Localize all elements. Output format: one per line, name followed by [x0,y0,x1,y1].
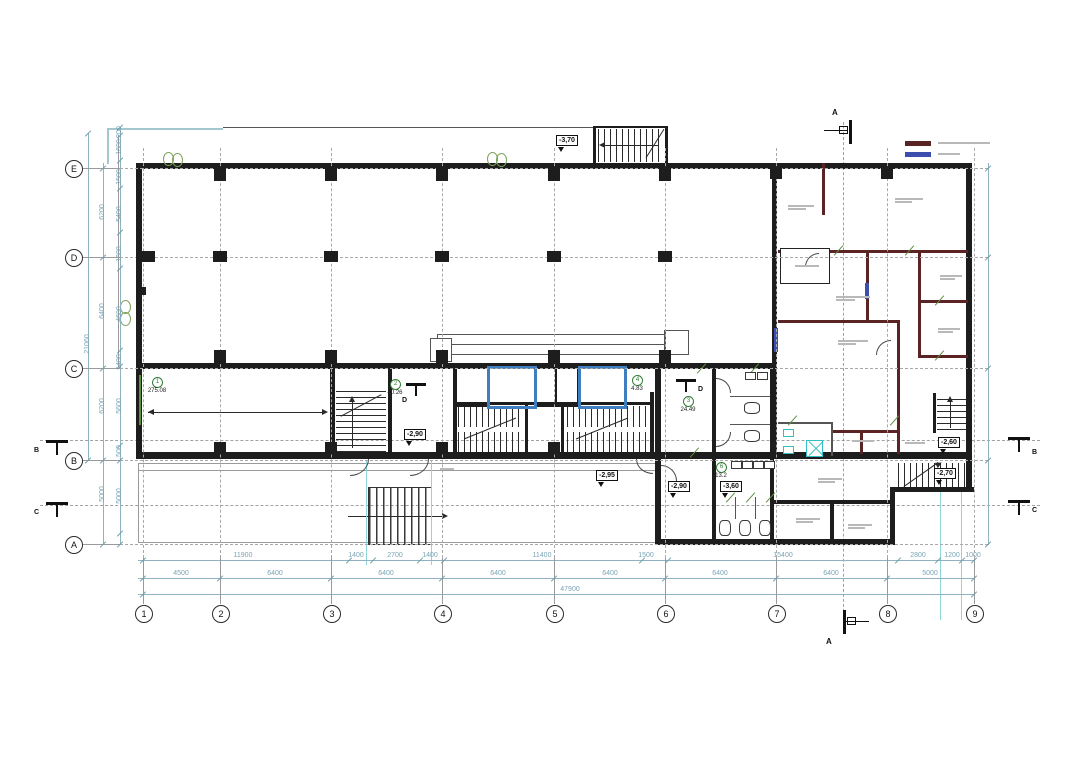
grid-extension [220,558,221,604]
stair-wall [593,126,596,165]
dim-text: 1400 [341,552,371,560]
room-label-placeholder [788,205,814,211]
room-number: 1 [152,377,163,388]
apron-outline [138,463,657,464]
toilet [744,430,760,442]
dim-text: 11400 [517,552,567,560]
elevation-tick [940,449,946,454]
dim-text: 5000 [99,474,107,514]
elevation-marker: -2,90 [404,429,426,440]
partition [712,368,716,541]
section-flag [685,381,687,392]
masonry-wall [918,250,921,358]
section-flag [415,385,417,396]
grid-centerline [120,544,988,545]
door-arc [716,432,731,447]
column [658,251,672,262]
dim-text: 6400 [595,570,625,578]
room-label-placeholder [796,518,820,524]
room-label-placeholder [836,296,870,302]
grid-bubble-row-e: E [65,160,83,178]
section-flag [1018,503,1020,515]
canopy-line [107,128,223,130]
door-arc [716,378,731,393]
section-line-a [843,122,844,632]
dim-line [138,578,975,579]
elevation-marker: -2,90 [668,481,690,492]
shaft-divider [555,366,557,403]
stair-arrow [352,398,353,448]
grid-extension [143,558,144,604]
column-pilaster [214,350,226,364]
plant-icon [496,153,507,167]
grid-bubble-col-5: 5 [546,605,564,623]
masonry-wall [918,300,968,303]
door-swing [746,492,755,502]
stair-arrow [603,145,658,146]
section-flag [845,621,869,622]
grid-centerline [887,148,888,558]
room-area: 13.2 [704,473,738,480]
green-wall-mark [139,375,141,425]
dim-text: 5400 [116,194,124,234]
door-arc [636,459,653,474]
room-number: 6 [716,462,727,473]
section-flag [843,610,846,634]
section-line-b [40,440,1040,441]
column-pilaster [436,442,448,453]
toilet [744,402,760,414]
dim-line [138,560,975,561]
elevator-shaft [487,366,537,409]
partition [830,500,834,543]
sink [783,446,794,454]
grid-bubble-row-d: D [65,249,83,267]
shaft-cell [535,366,579,407]
column-pilaster [214,442,226,453]
dim-text: 15400 [758,552,808,560]
legend-swatch-partition [905,152,931,157]
column [435,251,449,262]
elevation-marker: -3,70 [556,135,578,146]
section-label-c: C [1032,507,1037,514]
grid-extension [554,558,555,604]
column-pilaster [659,350,671,364]
grid-bubble-row-b: B [65,452,83,470]
grid-bubble-row-a: A [65,536,83,554]
grid-centerline [776,148,777,558]
column-pilaster [548,167,560,181]
stair-central-a [458,406,522,427]
shaft-cell [455,366,489,407]
plant-icon [172,153,183,167]
partition [525,404,528,459]
dim-text: 6400 [99,291,107,331]
dim-text: 6400 [371,570,401,578]
elevation-marker: -2,70 [934,468,956,479]
grid-bubble-col-8: 8 [879,605,897,623]
stall-wall [730,424,770,425]
apron-outline [138,463,139,543]
sink [757,372,768,380]
dim-text: 4500 [166,570,196,578]
ramp-edge-line [366,460,367,565]
dim-line [88,133,89,460]
elevation-marker: -3,60 [720,481,742,492]
column [213,251,227,262]
elevation-tick [406,441,412,446]
room-area: 4.83 [620,386,654,393]
column-pilaster [214,167,226,181]
column-pilaster [325,350,337,364]
stall-wall [730,396,770,397]
stair-arrowhead [349,396,355,402]
grid-extension [974,558,975,604]
grid-extension [776,558,777,604]
grid-bubble-col-1: 1 [135,605,153,623]
column-pilaster [436,167,448,181]
dim-tick [985,541,991,547]
sink [764,461,775,469]
grid-extension [331,558,332,604]
stair-central-b [567,432,647,453]
elevation-tick [670,493,676,498]
elevation-tick [722,493,728,498]
grid-centerline [974,148,975,558]
dim-text: 6400 [705,570,735,578]
dim-text: 500 [116,431,124,471]
elevation-tick [598,482,604,487]
column [547,251,561,262]
dim-text: 4600 [116,294,124,334]
stair-arrow [950,398,951,428]
door-arc [661,465,677,481]
column-pilaster [325,167,337,181]
room-area: 24.49 [671,407,705,414]
dim-line [138,594,975,595]
column-pilaster [548,350,560,364]
section-flag [849,120,852,144]
column-pilaster [136,287,146,295]
door-arc [410,459,429,476]
section-label-b: B [1032,449,1037,456]
section-label-d: D [402,397,407,404]
column-pilaster [548,442,560,453]
stair-arrowhead [947,396,953,402]
section-flag [1018,440,1020,452]
dim-text: 5600 [116,386,124,426]
stair-right-lower [898,463,968,489]
ramp-arrow [348,516,442,517]
masonry-wall [918,355,968,358]
grid-bubble-col-3: 3 [323,605,341,623]
stair-central-b [567,406,647,427]
room-label-placeholder [905,442,925,445]
room-label-placeholder [838,340,868,346]
room-label-placeholder [852,440,874,443]
grid-bubble-col-4: 4 [434,605,452,623]
room-label-placeholder [848,524,872,530]
annotation-placeholder [440,468,454,471]
room-number: 4 [632,375,643,386]
column-pilaster [436,350,448,364]
ramp-edge-line [431,460,432,565]
masonry-wall [778,320,900,323]
grid-extension [665,558,666,604]
masonry-wall [822,163,825,215]
sink [753,461,764,469]
bath-wall [778,422,833,424]
wall-step [890,487,974,492]
section-label-b: B [34,447,39,454]
stall-wall [755,497,756,519]
masonry-wall [897,320,900,454]
dim-line [988,163,989,545]
room-number: 3 [683,396,694,407]
hall-arrowhead [322,409,328,415]
sink [783,429,794,437]
grid-bubble-col-9: 9 [966,605,984,623]
column-pilaster [136,251,155,262]
dim-text: 5000 [915,570,945,578]
section-label-a: A [832,108,838,117]
toilet [759,520,771,536]
sink [742,461,753,469]
grid-extension [442,558,443,604]
room-label-placeholder [895,198,923,204]
wall-step [890,490,895,545]
hall-arrow [148,412,324,413]
grid-centerline [120,368,988,369]
dim-text: 2800 [903,552,933,560]
room-number: 2 [390,379,401,390]
hall-arrowhead [148,409,154,415]
section-label-a: A [826,637,832,646]
floor-plan-canvas: -3,70 -2,90 -2,95 -2,90 -3,60 -2,60 -2,7… [0,0,1080,763]
dim-text: 2700 [380,552,410,560]
grid-extension [887,558,888,604]
toilet [719,520,731,536]
canopy-line [107,128,109,164]
legend-swatch-masonry [905,141,931,146]
sink [745,372,756,380]
dock-band [437,334,665,335]
partition [770,368,774,541]
stall-wall [735,497,736,519]
stair-wall [933,393,936,433]
section-flag [56,505,58,517]
section-flag [824,130,848,131]
dim-text-total: 21060 [84,324,92,364]
elevation-marker: -2,95 [596,470,618,481]
room-area: 40.26 [378,390,412,397]
door-swing [788,415,797,425]
stair-arrowhead [599,142,605,148]
grid-bubble-col-7: 7 [768,605,786,623]
section-label-c: C [34,509,39,516]
room-label-placeholder [818,478,842,484]
column-pilaster [659,167,671,181]
room-label-placeholder [938,328,960,334]
elevation-tick [936,480,942,485]
dim-text: 6400 [483,570,513,578]
grid-bubble-col-6: 6 [657,605,675,623]
dim-text: 6400 [260,570,290,578]
section-label-d: D [698,386,703,393]
room-label-placeholder [795,265,819,268]
grid-bubble-row-c: C [65,360,83,378]
shower [806,440,823,457]
sink [731,461,742,469]
grid-bubble-col-2: 2 [212,605,230,623]
exterior-wall-right [966,163,972,492]
legend-text-placeholder [938,142,990,145]
dim-text: 1500 [631,552,661,560]
column-pilaster [770,167,782,179]
stair-grid3 [336,390,386,452]
column [324,251,338,262]
door-arc [876,340,891,355]
elevation-marker: -2,60 [938,437,960,448]
partition [561,404,564,459]
room-label-placeholder [940,275,962,281]
wall-grid6 [655,363,661,545]
room-area: 275.08 [140,388,174,395]
stair-central-a [458,432,522,453]
stair-wall [593,126,668,128]
bath-wall [831,422,833,456]
dim-text: 6400 [816,570,846,578]
elevation-tick [558,147,564,152]
dim-text: 6200 [99,386,107,426]
dim-text-total: 47900 [545,586,595,594]
section-flag [56,443,58,455]
dim-text: 11900 [218,552,268,560]
dock-band [437,344,665,345]
dim-text: 6200 [99,192,107,232]
apron-outline [138,470,657,471]
grid-centerline [143,148,144,558]
toilet [739,520,751,536]
partition [388,363,392,459]
legend-text-placeholder [938,153,960,156]
grid-centerline [120,460,988,461]
column-pilaster [881,167,893,179]
column-pilaster [325,442,337,453]
dim-text: 5000 [116,476,124,516]
